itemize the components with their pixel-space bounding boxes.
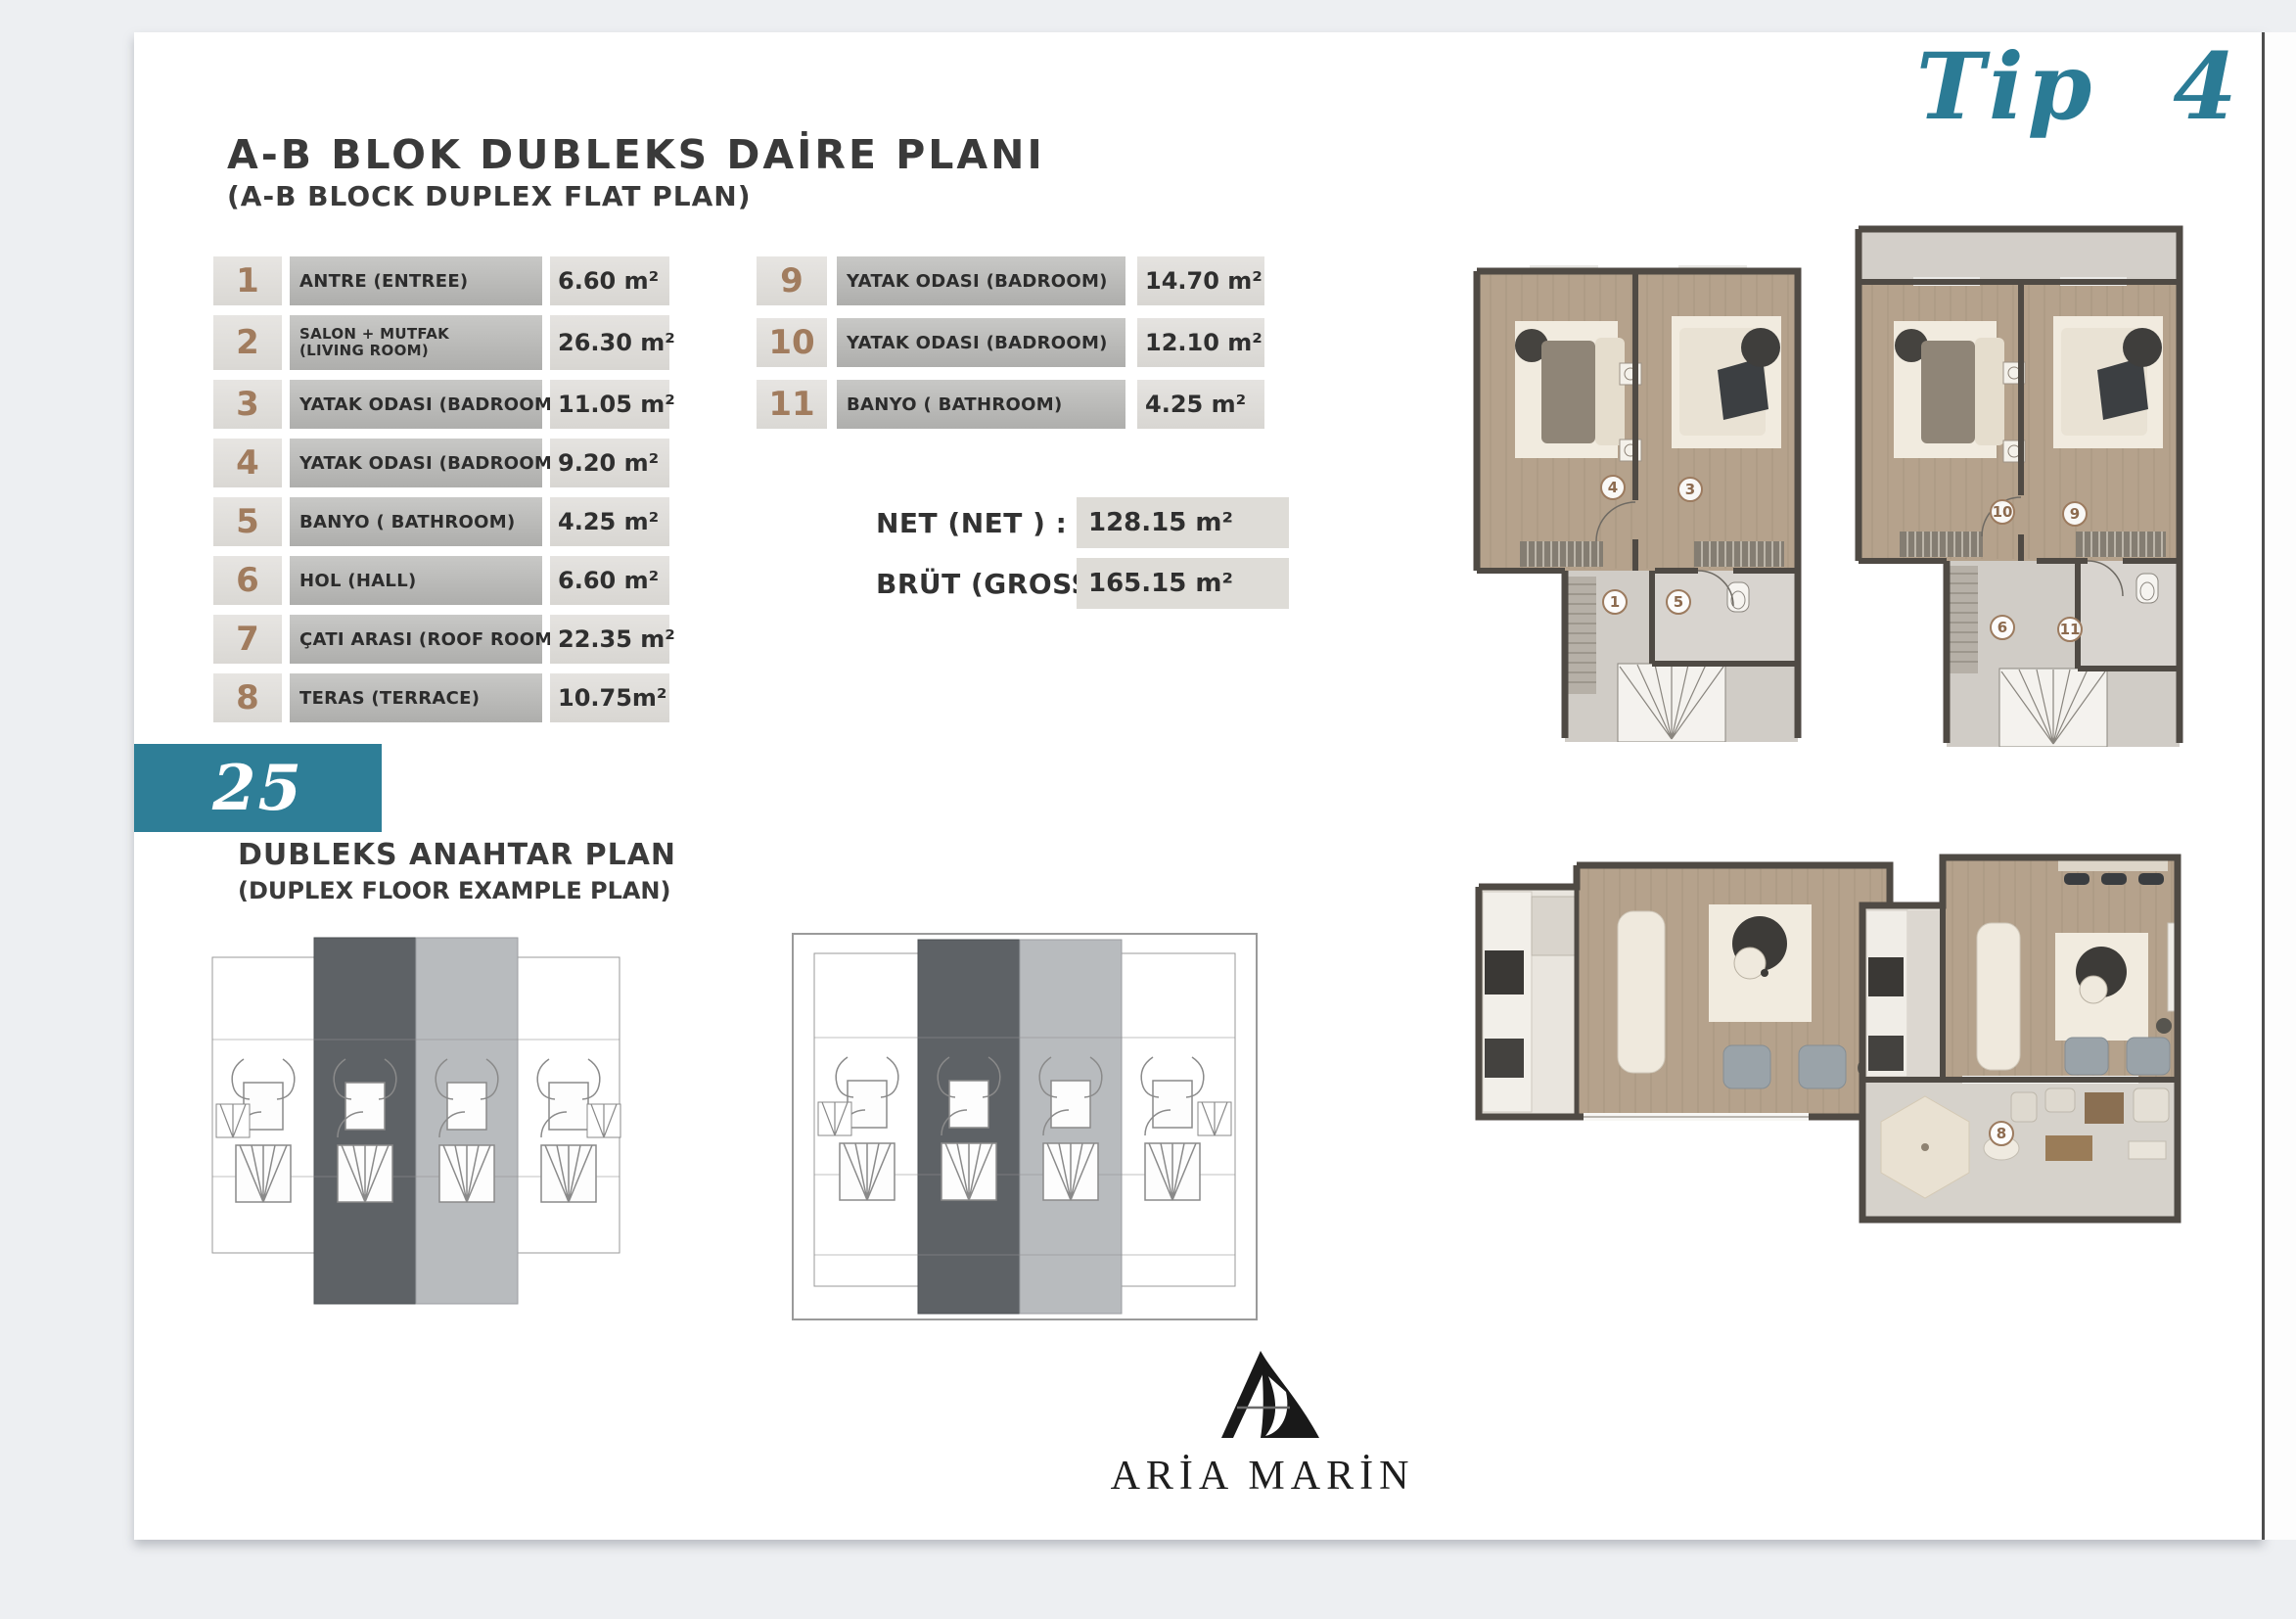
room-area: 12.10 m² <box>1137 318 1264 367</box>
bed-blanket <box>1921 341 1975 443</box>
key-plan-drawing-b <box>791 932 1259 1321</box>
closet-hatch <box>1567 577 1596 694</box>
table-row: 5BANYO ( BATHROOM)4.25 m² <box>213 497 669 546</box>
stove <box>1485 950 1524 995</box>
gross-label: BRÜT (GROSS): <box>876 568 1067 600</box>
floor-plan-lower-a-svg <box>1471 857 1897 1127</box>
brand-logo: ARİA MARİN <box>1091 1347 1434 1500</box>
room-label: YATAK ODASI (BADROOM) <box>837 318 1125 367</box>
room-table-left: 1ANTRE (ENTREE)6.60 m² 2SALON + MUTFAK(L… <box>213 256 669 722</box>
room-circle: 9 <box>2062 501 2088 527</box>
room-number: 11 <box>757 380 827 429</box>
room-label: ÇATI ARASI (ROOF ROOM) <box>290 615 542 664</box>
chair <box>2123 328 2162 367</box>
room-label: BANYO ( BATHROOM) <box>837 380 1125 429</box>
umbrella-pole <box>1921 1143 1929 1151</box>
floor-plan-upper-a: 4 3 1 5 <box>1471 248 1804 742</box>
table-row: 4YATAK ODASI (BADROOM)9.20 m² <box>213 439 669 487</box>
room-area: 10.75m² <box>550 673 669 722</box>
sink <box>1868 1036 1904 1071</box>
floor-plan-lower-b-svg <box>1845 830 2285 1226</box>
room-label: YATAK ODASI (BADROOM) <box>290 439 542 487</box>
net-row: NET (NET ) :128.15 m² <box>876 497 1289 548</box>
table-row: 3YATAK ODASI (BADROOM)11.05 m² <box>213 380 669 429</box>
room-label: ANTRE (ENTREE) <box>290 256 542 305</box>
room-number: 10 <box>757 318 827 367</box>
decor-dot <box>1761 969 1768 977</box>
type-label: Tip 4 <box>1916 33 2241 141</box>
room-number: 3 <box>213 380 282 429</box>
table-row: 11BANYO ( BATHROOM)4.25 m² <box>757 380 1264 429</box>
scan-edge <box>2265 32 2296 1540</box>
radiator <box>1900 532 1983 557</box>
page-subtitle: (A-B BLOCK DUPLEX FLAT PLAN) <box>227 180 752 212</box>
room-label: HOL (HALL) <box>290 556 542 605</box>
room-number: 2 <box>213 315 282 370</box>
room-label: YATAK ODASI (BADROOM) <box>837 256 1125 305</box>
page-number-badge: 25 <box>134 744 382 832</box>
room-label: TERAS (TERRACE) <box>290 673 542 722</box>
table-row: 1ANTRE (ENTREE)6.60 m² <box>213 256 669 305</box>
floor-plan-upper-b-svg <box>1853 223 2185 747</box>
room-number: 4 <box>213 439 282 487</box>
step-wall <box>1479 865 1577 887</box>
room-circle: 10 <box>1990 499 2015 525</box>
stairs <box>1618 664 1725 742</box>
armchair <box>1799 1045 1846 1088</box>
bed-pillows <box>1975 338 2004 445</box>
room-number: 9 <box>757 256 827 305</box>
terrace-chair <box>2045 1088 2075 1112</box>
bed-pillows <box>1595 338 1625 445</box>
room-area: 4.25 m² <box>550 497 669 546</box>
floor-plan-upper-b: 10 9 6 11 <box>1853 223 2185 747</box>
room-circle: 5 <box>1666 589 1691 615</box>
room-circle: 11 <box>2057 617 2083 642</box>
page-title: A-B BLOK DUBLEKS DAİRE PLANI <box>227 131 1045 178</box>
key-plan-drawing-a <box>210 932 626 1323</box>
room-area: 6.60 m² <box>550 256 669 305</box>
fridge <box>1532 897 1575 955</box>
floor-plan-upper-a-svg <box>1471 248 1804 742</box>
table-row: 9YATAK ODASI (BADROOM)14.70 m² <box>757 256 1264 305</box>
closet-hatch <box>1949 566 1978 673</box>
area-totals: NET (NET ) :128.15 m² BRÜT (GROSS):165.1… <box>876 497 1289 609</box>
bed-blanket <box>1541 341 1595 443</box>
armchair <box>1723 1045 1770 1088</box>
sink <box>1485 1039 1524 1078</box>
radiator <box>1520 541 1603 567</box>
floor-plan-lower-a <box>1471 857 1897 1127</box>
key-plan-title: DUBLEKS ANAHTAR PLAN <box>238 838 676 872</box>
room-area: 26.30 m² <box>550 315 669 370</box>
room-area: 11.05 m² <box>550 380 669 429</box>
room-circle: 3 <box>1677 477 1703 502</box>
terrace-sofa <box>2134 1088 2169 1122</box>
room-area: 4.25 m² <box>1137 380 1264 429</box>
radiator <box>1694 541 1784 567</box>
room-circle: 4 <box>1600 475 1626 500</box>
stairs <box>1999 669 2107 747</box>
terrace-table <box>2085 1092 2124 1124</box>
bathroom-floor <box>2078 561 2180 669</box>
terrace-bench <box>2129 1141 2166 1159</box>
table-row: 2SALON + MUTFAK(LIVING ROOM)26.30 m² <box>213 315 669 370</box>
room-number: 5 <box>213 497 282 546</box>
room-circle: 6 <box>1990 615 2015 640</box>
dining-chair <box>2138 873 2164 885</box>
kitchen-counter <box>1483 892 1532 1112</box>
chair <box>1741 328 1780 367</box>
stove <box>1868 957 1904 996</box>
sofa <box>1977 923 2020 1070</box>
room-area: 14.70 m² <box>1137 256 1264 305</box>
net-value: 128.15 m² <box>1077 497 1289 548</box>
brand-name: ARİA MARİN <box>1091 1453 1434 1500</box>
table-row: 6HOL (HALL)6.60 m² <box>213 556 669 605</box>
terrace-chair <box>2011 1092 2037 1122</box>
roof-strip-floor <box>1859 229 2180 282</box>
armchair <box>2127 1038 2170 1075</box>
terrace-mat <box>2045 1135 2092 1161</box>
dining-chair <box>2064 873 2089 885</box>
coffee-table-tray <box>2080 976 2107 1003</box>
sail-logo-icon <box>1204 1347 1321 1445</box>
floor-plan-lower-b: 8 <box>1845 830 2285 1226</box>
page-right-border <box>2262 32 2265 1540</box>
table-row: 7ÇATI ARASI (ROOF ROOM)22.35 m² <box>213 615 669 664</box>
net-label: NET (NET ) : <box>876 507 1067 539</box>
room-circle: 1 <box>1602 589 1628 615</box>
bathroom-floor <box>1652 571 1798 664</box>
sofa <box>1618 911 1665 1073</box>
room-number: 7 <box>213 615 282 664</box>
dining-chair <box>2101 873 2127 885</box>
key-plan-subtitle: (DUPLEX FLOOR EXAMPLE PLAN) <box>238 877 671 904</box>
room-circle: 8 <box>1989 1121 2014 1146</box>
gross-value: 165.15 m² <box>1077 558 1289 609</box>
room-area: 6.60 m² <box>550 556 669 605</box>
kitchen-tiles <box>1907 910 1943 1077</box>
room-table-right: 9YATAK ODASI (BADROOM)14.70 m² 10YATAK O… <box>757 256 1264 429</box>
room-number: 1 <box>213 256 282 305</box>
room-area: 9.20 m² <box>550 439 669 487</box>
room-label: BANYO ( BATHROOM) <box>290 497 542 546</box>
table-row: 10YATAK ODASI (BADROOM)12.10 m² <box>757 318 1264 367</box>
room-label: YATAK ODASI (BADROOM) <box>290 380 542 429</box>
room-number: 6 <box>213 556 282 605</box>
radiator <box>2076 532 2166 557</box>
room-label: SALON + MUTFAK(LIVING ROOM) <box>290 315 542 370</box>
room-number: 8 <box>213 673 282 722</box>
key-plan-b-svg <box>791 932 1259 1321</box>
gross-row: BRÜT (GROSS):165.15 m² <box>876 558 1289 609</box>
room-area: 22.35 m² <box>550 615 669 664</box>
table-row: 8TERAS (TERRACE)10.75m² <box>213 673 669 722</box>
armchair <box>2065 1038 2108 1075</box>
side-table <box>2156 1018 2172 1034</box>
toilet <box>1727 582 1749 612</box>
key-plan-a-svg <box>210 932 626 1323</box>
toilet <box>2136 574 2158 603</box>
